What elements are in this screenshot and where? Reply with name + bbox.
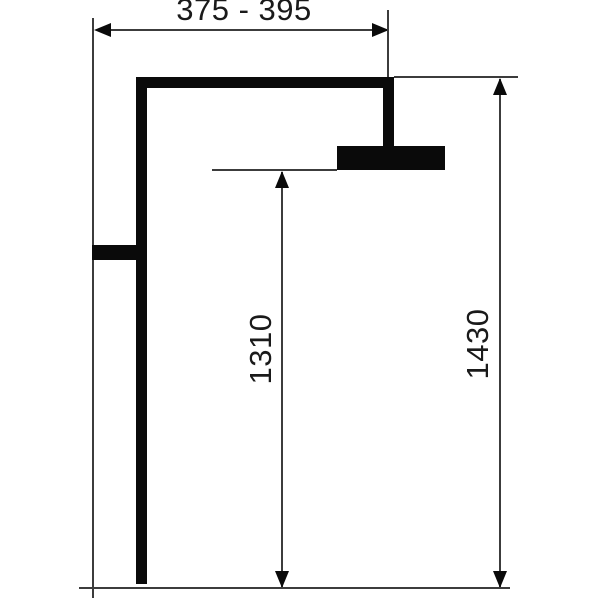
arrowhead-down-icon [275, 571, 289, 588]
arrowhead-up-icon [493, 78, 507, 95]
arrowhead-left-icon [94, 23, 111, 37]
extension-line-left-vertical [92, 18, 94, 598]
extension-line-top-right-vertical [387, 10, 389, 77]
dimension-drawing-canvas: 375 - 395 1430 1310 [0, 0, 600, 600]
shower-riser-pipe [136, 77, 147, 584]
total-height-dimension-label: 1430 [462, 299, 494, 389]
shower-head-drop-pipe [383, 77, 394, 147]
head-height-dimension-label: 1310 [245, 304, 277, 394]
shower-top-arm [136, 77, 394, 88]
dimension-line-1310 [281, 172, 283, 588]
shower-head [337, 146, 445, 170]
dimension-line-1430 [499, 79, 501, 588]
dimension-line-top-width [97, 29, 387, 31]
top-width-dimension-label: 375 - 395 [159, 0, 329, 25]
arrowhead-down-icon [493, 571, 507, 588]
arrowhead-up-icon [275, 171, 289, 188]
wall-supply-stub [92, 245, 147, 260]
floor-baseline [79, 587, 510, 589]
